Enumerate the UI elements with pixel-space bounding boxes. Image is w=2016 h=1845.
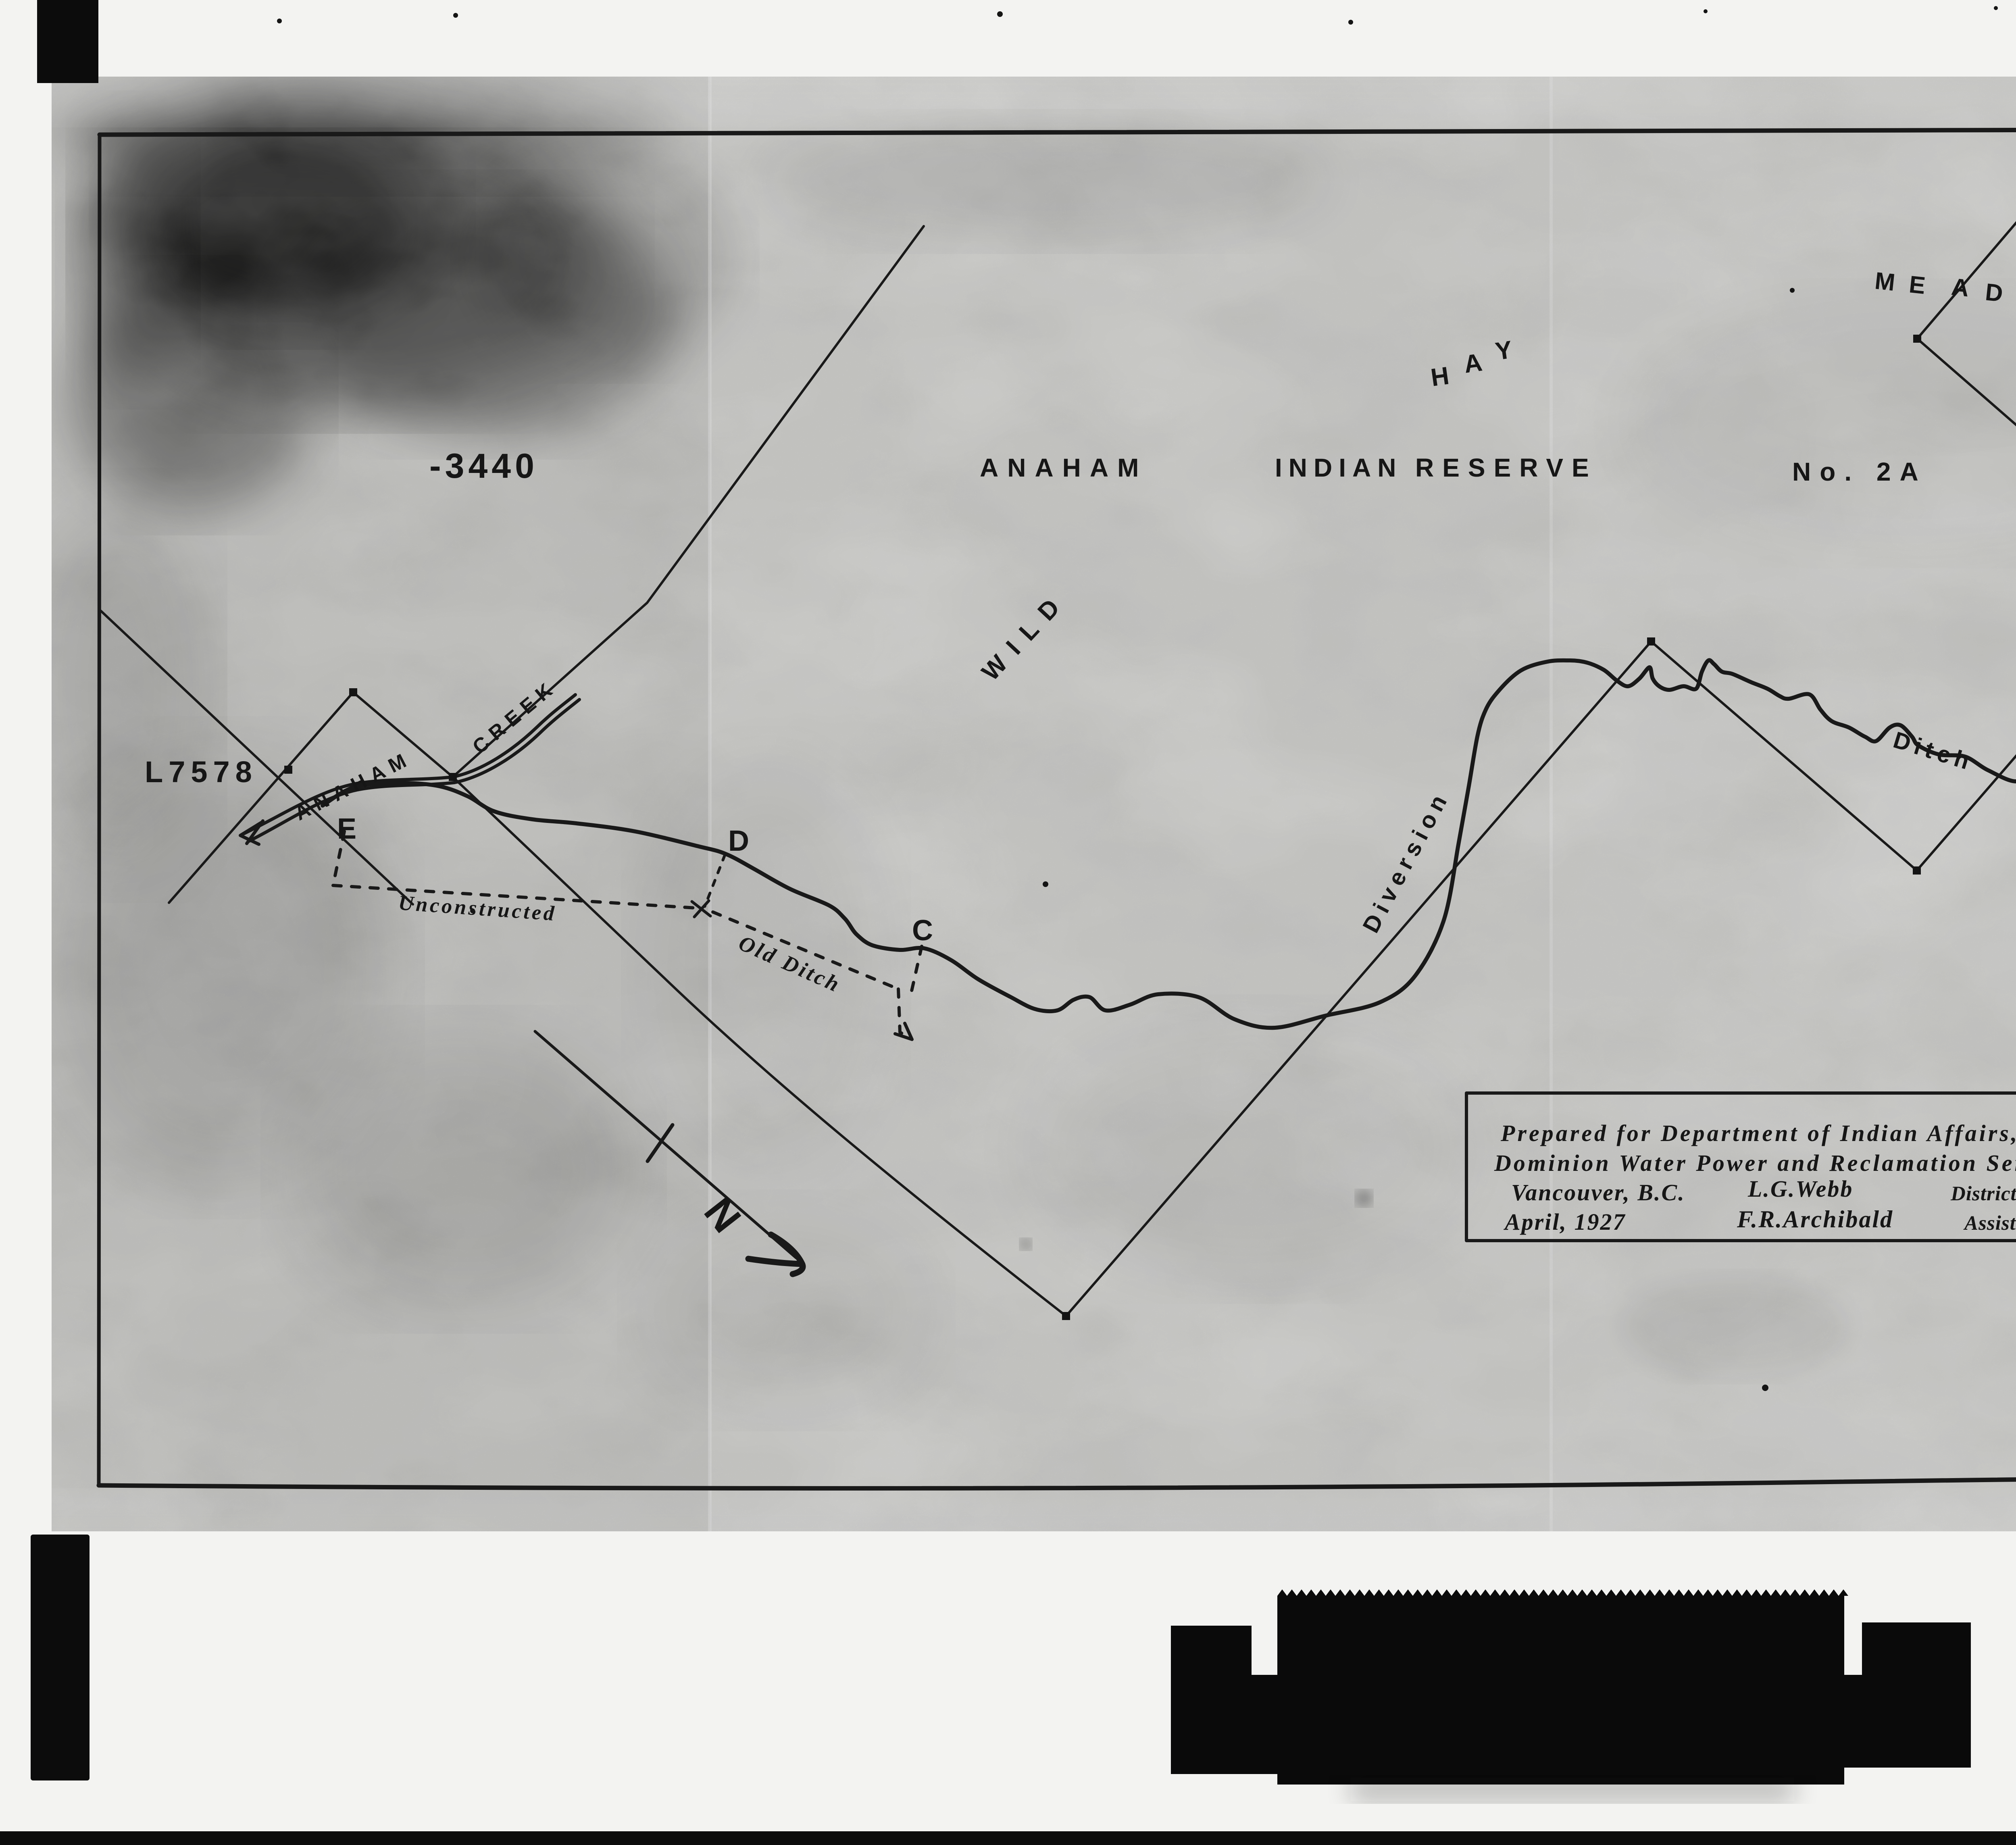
svg-text:Assistant Engineer.: Assistant Engineer. [1963, 1212, 2016, 1235]
svg-text:E: E [1908, 271, 1927, 299]
svg-text:L7578: L7578 [145, 755, 258, 789]
svg-text:INDIAN: INDIAN [1275, 453, 1402, 482]
svg-text:D: D [1984, 278, 2004, 307]
svg-text:D: D [728, 825, 749, 857]
svg-text:Dominion Water Power and Recla: Dominion Water Power and Reclamation Ser… [1494, 1150, 2016, 1176]
svg-text:E: E [337, 813, 356, 845]
svg-text:A: A [1950, 273, 1970, 302]
svg-text:RESERVE: RESERVE [1415, 453, 1597, 482]
svg-text:District Chief Engineer.: District Chief Engineer. [1950, 1183, 2016, 1205]
svg-text:A: A [1462, 348, 1484, 379]
svg-text:No. 2A: No. 2A [1792, 457, 1927, 486]
svg-text:M: M [1874, 267, 1897, 296]
svg-text:ANAHAM: ANAHAM [980, 453, 1148, 482]
svg-text:Vancouver, B.C.: Vancouver, B.C. [1511, 1179, 1685, 1206]
svg-text:H: H [1429, 362, 1451, 392]
svg-text:F.R.Archibald: F.R.Archibald [1737, 1206, 1893, 1233]
svg-text:Prepared for Department of Ind: Prepared for Department of Indian Affair… [1500, 1120, 2016, 1146]
svg-text:L.G.Webb: L.G.Webb [1747, 1176, 1853, 1202]
svg-text:-3440: -3440 [429, 447, 538, 485]
svg-text:April, 1927: April, 1927 [1504, 1209, 1626, 1235]
svg-text:C: C [912, 914, 933, 947]
